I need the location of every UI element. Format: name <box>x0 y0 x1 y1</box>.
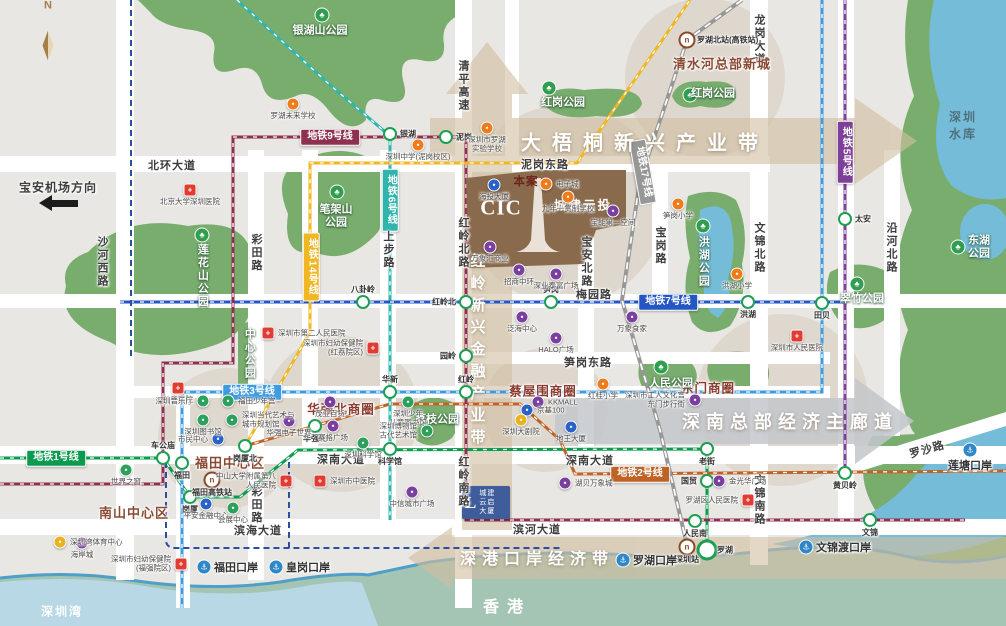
port-label: 罗湖口岸 <box>633 552 677 568</box>
station-marker <box>156 451 170 465</box>
station-marker <box>383 442 397 456</box>
park-label: 红岗公园 <box>541 97 585 110</box>
station-marker <box>356 295 370 309</box>
poi-label: 深圳市罗湖 实验学校 <box>468 135 506 154</box>
station-marker <box>439 130 453 144</box>
poi-label: 华强电子世界 <box>267 428 312 437</box>
park-label: 莲花山公园 <box>196 244 209 309</box>
poi-label: 红桂小学 <box>588 391 618 400</box>
hospital-poi-icon: + <box>367 342 380 355</box>
station-label: 人民南 <box>683 528 707 539</box>
road-label: 宝安北路 <box>578 236 594 288</box>
poi-label: 深圳科学馆 <box>344 450 382 459</box>
station-label: 洪湖 <box>740 309 756 320</box>
road-label: 宝岗路 <box>652 227 668 266</box>
park-tree-icon: ♣ <box>696 219 711 234</box>
poi-label: 深圳市工人文化宫 东门步行街 <box>625 391 685 410</box>
hospital-poi-icon: + <box>280 475 293 488</box>
hospital-poi-icon: + <box>175 558 188 571</box>
station-label: 车公庙 <box>151 440 175 451</box>
road-label: 笋岗东路 <box>564 354 612 370</box>
poi-label: 深圳中学(泥岗校区) <box>386 152 451 161</box>
mall-poi-icon: • <box>406 486 419 499</box>
station-label: 八卦岭 <box>351 284 375 295</box>
metro-line-badge: 地铁1号线 <box>26 450 86 467</box>
poi-label: 湖贝万象城 <box>575 478 613 487</box>
poi-label: 深圳大剧院 <box>502 427 540 436</box>
project-marker-label: 本案 <box>514 173 539 189</box>
road-label: 红岭南路 <box>455 456 471 508</box>
culture-poi-icon: • <box>222 395 235 408</box>
road-label: 沿河北路 <box>883 222 899 274</box>
station-label: 老街 <box>699 456 715 467</box>
mall-poi-icon: • <box>513 264 526 277</box>
park-tree-icon: ♣ <box>330 185 345 200</box>
mall-poi-icon: • <box>484 241 497 254</box>
belt-label-shennan: 深南总部经济主廊道 <box>682 408 898 434</box>
poi-label: 世界之窗 <box>111 477 141 486</box>
station-label: 岗厦北 <box>233 453 257 464</box>
belt-label-shengang: 深港口岸经济带 <box>460 545 614 569</box>
rail-station-label: 深圳站 <box>675 554 699 565</box>
station-marker <box>238 439 252 453</box>
school-poi-icon: • <box>731 268 744 281</box>
station-marker <box>863 513 877 527</box>
poi-label: 海投大厦 <box>479 192 509 201</box>
poi-label: 中山大学附属第八 人民医院 <box>216 472 276 491</box>
station-label: 黄贝岭 <box>833 480 857 491</box>
road-label: 梅园路 <box>576 286 612 302</box>
station-label: 文锦 <box>862 527 878 538</box>
station-marker <box>459 385 473 399</box>
park-label: 笔架山 公园 <box>320 203 353 228</box>
hospital-poi-icon: + <box>742 494 755 507</box>
park-tree-icon: ♣ <box>315 8 330 23</box>
poi-label: 福田少年宫 <box>238 396 276 405</box>
port-icon: ⚓ <box>197 560 212 575</box>
road-label: 彩田路 <box>248 486 264 525</box>
station-label: 银湖 <box>400 129 416 140</box>
station-marker <box>815 296 829 310</box>
port-label: 莲塘口岸 <box>948 457 992 473</box>
mall-poi-icon: • <box>713 475 726 488</box>
mall-poi-icon: • <box>559 477 572 490</box>
port-icon: ⚓ <box>616 553 631 568</box>
compass-north-label: N <box>43 0 54 12</box>
poi-label: 宝能第一空间 <box>591 218 636 227</box>
hospital-poi-icon: + <box>791 330 804 343</box>
poi-label: 深圳博物馆 古代艺术馆 <box>380 422 418 441</box>
culture-poi-icon: • <box>197 414 210 427</box>
station-marker <box>175 456 189 470</box>
poi-label: 北京大学深圳医院 <box>160 197 220 206</box>
station-label: 红岭北 <box>432 297 456 308</box>
district-label: 清水河总部新城 <box>673 54 771 73</box>
poi-label: 京基100 <box>537 405 565 414</box>
station-marker <box>688 514 702 528</box>
poi-label: 深圳市第二人民医院 <box>278 328 346 337</box>
hospital-poi-icon: + <box>314 475 327 488</box>
mall-poi-icon: • <box>540 178 553 191</box>
station-marker <box>697 540 718 561</box>
mall-poi-icon: • <box>550 268 563 281</box>
compass-needle-icon <box>43 31 54 61</box>
station-label: 福田 <box>174 470 190 481</box>
station-label: 园岭 <box>440 351 456 362</box>
port-label: 文锦渡口岸 <box>816 539 871 555</box>
rail-station-label: 罗湖北站(高铁站) <box>697 35 758 46</box>
culture-poi-icon: • <box>402 396 415 409</box>
hospital-poi-icon: + <box>262 327 275 340</box>
mall-poi-icon: • <box>324 396 337 409</box>
mall-poi-icon: • <box>607 205 620 218</box>
park-tree-icon: ♣ <box>850 277 865 292</box>
venue-poi-icon: • <box>515 414 528 427</box>
station-label: 国贸 <box>681 476 697 487</box>
culture-poi-icon: • <box>197 395 210 408</box>
road-label: 滨海大道 <box>234 522 282 538</box>
mall-poi-icon: • <box>516 311 529 324</box>
rail-station-icon: n <box>679 539 696 556</box>
park-label: 红岗公园 <box>691 88 735 101</box>
poi-label: 泛海中心 <box>507 324 537 333</box>
culture-poi-icon: • <box>357 437 370 450</box>
station-label: 罗湖 <box>717 545 733 556</box>
water-label: 香港 <box>483 593 531 617</box>
poi-label: 会展中心 <box>218 515 248 524</box>
station-marker <box>838 212 852 226</box>
tower2-name: 城建 云启 大厦 <box>479 489 495 516</box>
poi-label: 深圳市中医院 <box>330 476 375 485</box>
water-label: 深圳湾 <box>41 603 83 620</box>
port-icon: ⚓ <box>963 443 978 458</box>
rail-station-icon: n <box>679 32 696 49</box>
metro-line-badge: 地铁5号线 <box>837 121 854 184</box>
mall-poi-icon: • <box>626 311 639 324</box>
culture-poi-icon: • <box>120 464 133 477</box>
poi-label: 海岸城 <box>71 550 94 559</box>
road-label: 滨河大道 <box>513 521 561 537</box>
building-poi-icon: • <box>200 498 213 511</box>
park-label: 洪湖公园 <box>697 236 710 288</box>
water-label: 深圳水库 <box>949 108 987 142</box>
poi-label: 金光华广场 <box>729 476 767 485</box>
poi-label: 深圳音乐厅 <box>156 396 194 405</box>
port-label: 皇岗口岸 <box>286 559 330 575</box>
poi-label: 深圳当代艺术与 城市规划馆 <box>242 411 295 430</box>
metro-line-badge: 地铁14号线 <box>303 232 320 301</box>
park-label: 东湖公园 <box>966 234 993 259</box>
hospital-poi-icon: + <box>172 382 185 395</box>
station-marker <box>459 295 473 309</box>
station-marker <box>741 295 755 309</box>
building-poi-icon: • <box>565 421 578 434</box>
park-tree-icon: ♣ <box>951 240 966 255</box>
metro-line-badge: 地铁7号线 <box>638 294 698 311</box>
station-label: 红岭 <box>458 374 474 385</box>
metro-line-badge: 地铁9号线 <box>300 129 360 146</box>
poi-label: 洪湖小学 <box>722 281 752 290</box>
school-poi-icon: • <box>672 198 685 211</box>
mall-poi-icon: • <box>327 420 340 433</box>
culture-poi-icon: • <box>226 414 239 427</box>
station-label: 华新 <box>382 374 398 385</box>
venue-poi-icon: • <box>54 536 67 549</box>
school-poi-icon: • <box>287 98 300 111</box>
belt-label-dawutong: 大梧桐新兴产业带 <box>521 127 769 156</box>
map-canvas <box>0 0 1006 626</box>
station-marker <box>383 127 397 141</box>
road-label: 彩田路 <box>248 234 264 273</box>
poi-label: 万象汇商业 <box>471 254 509 263</box>
culture-poi-icon: • <box>421 425 434 438</box>
station-label: 田贝 <box>814 310 830 321</box>
poi-label: 罗湖区人民医院 <box>686 495 739 504</box>
school-poi-icon: • <box>562 191 575 204</box>
poi-label: 赛格广场 <box>318 433 348 442</box>
station-marker <box>544 295 558 309</box>
road-label: 清平高速 <box>455 60 471 112</box>
hospital-poi-icon: + <box>184 184 197 197</box>
school-poi-icon: • <box>481 122 494 135</box>
poi-label: 深圳市妇幼保健院 (红荔院区) <box>303 339 363 358</box>
airport-direction-label: 宝安机场方向 <box>19 179 97 196</box>
road-label: 深南大道 <box>566 452 614 468</box>
poi-label: 茂业百货 <box>315 409 345 418</box>
culture-poi-icon: • <box>227 502 240 515</box>
poi-label: 深业泰富广场 <box>534 281 579 290</box>
station-marker <box>459 349 473 363</box>
poi-label: 深圳市人民医院 <box>771 343 824 352</box>
park-label: 中心公园 <box>243 328 256 380</box>
road-label: 北环大道 <box>148 157 196 173</box>
station-marker <box>700 442 714 456</box>
poi-label: 笋岗小学 <box>663 211 693 220</box>
port-label: 福田口岸 <box>214 559 258 575</box>
station-marker <box>383 385 397 399</box>
poi-label: 罗湖未来学校 <box>271 111 316 120</box>
road-label: 上步路 <box>380 231 396 270</box>
poi-label: 电子城 <box>556 179 579 188</box>
poi-label: 中信城市广场 <box>390 499 435 508</box>
building-poi-icon: • <box>488 179 501 192</box>
park-label: 银湖山公园 <box>293 25 348 38</box>
port-icon: ⚓ <box>269 560 284 575</box>
mall-poi-icon: • <box>550 332 563 345</box>
school-poi-icon: • <box>597 378 610 391</box>
shenzhen-location-map: N 本案 ★ CIC 城建云投 L 城建 云启 大厦 地铁1号线地铁2号线地铁3… <box>0 0 1006 626</box>
park-tree-icon: ♣ <box>654 360 669 375</box>
poi-label: 深圳图书馆 <box>184 427 222 436</box>
poi-label: 深圳市妇幼保健院 (福强院区) <box>111 555 171 574</box>
school-poi-icon: • <box>412 139 425 152</box>
park-tree-icon: ♣ <box>542 81 557 96</box>
poi-label: 地王大厦 <box>556 434 586 443</box>
poi-label: 深圳湾体育中心 <box>70 537 123 546</box>
poi-label: HALO广场 <box>538 345 573 354</box>
station-marker <box>838 466 852 480</box>
mall-poi-icon: • <box>689 394 702 407</box>
port-icon: ⚓ <box>799 540 814 555</box>
park-label: 人民公园 <box>649 378 693 391</box>
station-label: 太安 <box>855 214 871 225</box>
metro-line-badge: 地铁2号线 <box>610 466 670 483</box>
metro-line-badge: 地铁6号线 <box>382 169 399 232</box>
poi-label: 九年一贯制学校 <box>542 204 595 213</box>
road-label: 文锦北路 <box>751 222 767 274</box>
road-label: 沙河西路 <box>94 236 110 288</box>
park-tree-icon: ♣ <box>195 228 210 243</box>
road-label: 泥岗东路 <box>521 156 569 172</box>
airport-direction-arrow-icon <box>52 200 78 207</box>
park-label: 翠竹公园 <box>840 293 884 306</box>
poi-label: 万象食家 <box>617 324 647 333</box>
district-label: 南山中心区 <box>99 503 169 522</box>
compass: N <box>43 0 54 97</box>
poi-label: 招商中环 <box>504 277 534 286</box>
